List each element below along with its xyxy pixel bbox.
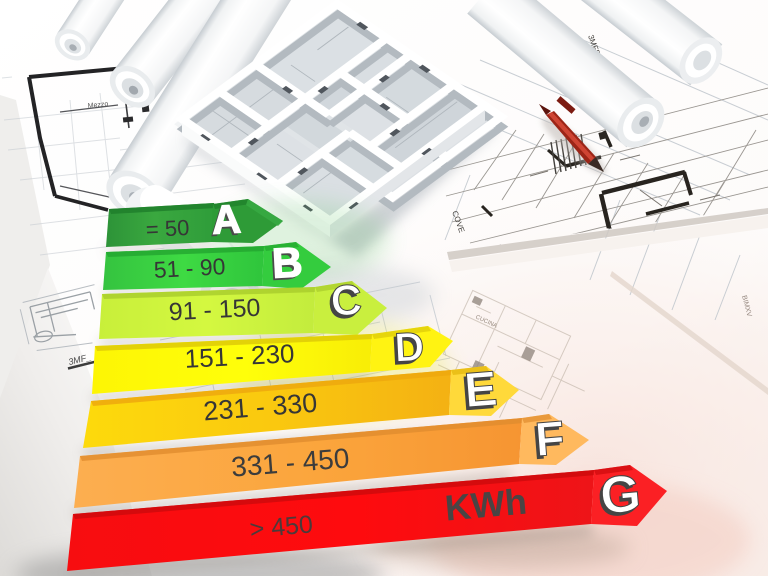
svg-text:D: D xyxy=(393,323,425,370)
svg-text:F: F xyxy=(533,412,566,467)
svg-text:G: G xyxy=(598,464,643,525)
svg-text:= 50: = 50 xyxy=(145,215,190,242)
svg-text:151 - 230: 151 - 230 xyxy=(184,338,295,374)
svg-text:KWh: KWh xyxy=(443,481,528,529)
svg-text:B: B xyxy=(271,238,304,287)
svg-text:A: A xyxy=(211,197,242,242)
svg-text:E: E xyxy=(462,362,499,418)
svg-text:C: C xyxy=(330,276,364,326)
svg-text:51 - 90: 51 - 90 xyxy=(153,253,226,283)
svg-text:91 - 150: 91 - 150 xyxy=(168,294,261,327)
svg-text:> 450: > 450 xyxy=(249,510,314,543)
